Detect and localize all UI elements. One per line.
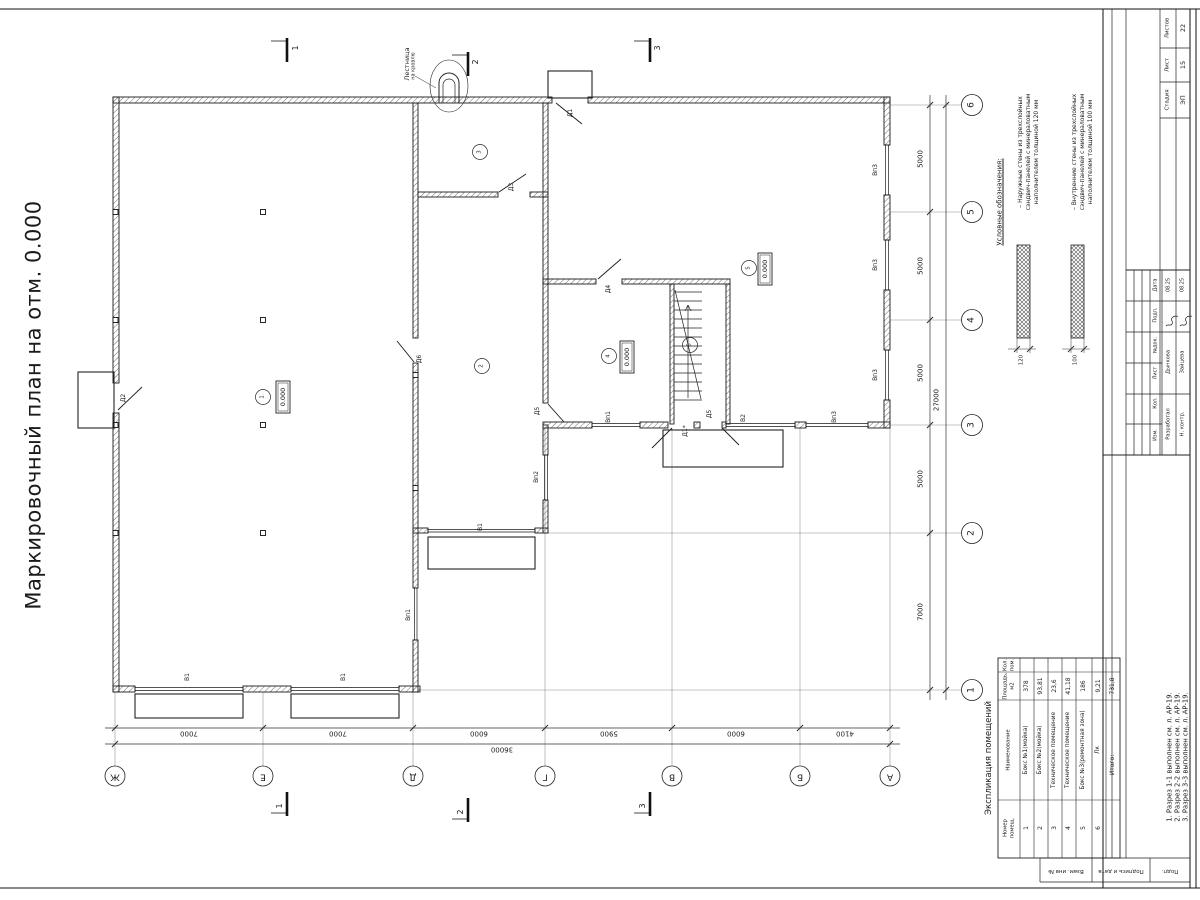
door-label: Д1*: [683, 425, 689, 437]
tb-side-cell: Взам. инв №: [1048, 867, 1084, 873]
door-label: Д2: [121, 394, 127, 403]
window-label: Вп1: [606, 411, 612, 423]
note-line: 1. Разрез 1-1 выполнен см. л. АР-19.: [1167, 692, 1174, 821]
room-number: 5: [746, 266, 752, 270]
dim-bottom: 6000: [470, 730, 488, 737]
dim-right: 7000: [918, 603, 925, 621]
door-label: Д5: [535, 407, 541, 416]
schedule-cell-number: 3: [1052, 826, 1058, 830]
legend-dim: 100: [1073, 355, 1079, 366]
axis-letter: А: [887, 772, 893, 781]
dim-bottom-total: 36000: [491, 746, 513, 753]
elevation-value: 0.000: [762, 260, 769, 279]
schedule-header: м2: [1010, 682, 1015, 689]
schedule-cell-area: 23,6: [1052, 679, 1058, 692]
section-number: 2: [457, 809, 465, 814]
tb-stage-header: Лист: [1165, 58, 1171, 72]
axis-number: 1: [968, 687, 977, 693]
axis-number: 6: [968, 102, 977, 108]
schedule-cell-name: Бокс №2(мойка): [1038, 725, 1044, 774]
window-label: В2: [741, 414, 747, 422]
dim-bottom: 4100: [836, 730, 854, 737]
plan-title: Маркировочный план на отм. 0.000: [24, 200, 45, 609]
tb-stage-header: Листов: [1165, 18, 1171, 39]
schedule-cell-number: 6: [1096, 826, 1102, 830]
tb-name: Дынкова: [1166, 350, 1171, 374]
schedule-cell-number: 1: [1024, 826, 1030, 830]
window-label: Вп3: [873, 369, 879, 381]
elevation-value: 0.000: [280, 388, 287, 407]
axis-number: 4: [968, 317, 977, 323]
schedule-cell-area: 41,18: [1066, 677, 1072, 694]
axis-number: 3: [968, 422, 977, 428]
schedule-header: Площадь,: [1003, 672, 1008, 699]
schedule-header: Номер: [1003, 819, 1008, 837]
schedule-cell-name: Лк: [1096, 746, 1102, 754]
tb-role: Разработал: [1166, 408, 1171, 439]
tb-date: 08.25: [1181, 278, 1186, 292]
dim-right: 5000: [918, 150, 925, 168]
tb-name: Зайцева: [1180, 351, 1185, 374]
dim-bottom: 6000: [727, 730, 745, 737]
tb-date: 08.25: [1167, 278, 1172, 292]
schedule-cell-area: 9,21: [1096, 679, 1102, 692]
legend-item-line: – Внутренние стены из трехслойных: [1072, 94, 1078, 210]
axis-letter: Ж: [110, 772, 120, 781]
legend-item-line: сэндвич-панелей с минераловатным: [1026, 94, 1032, 211]
dim-right: 5000: [918, 470, 925, 488]
tb-column-label: Кол.: [1154, 397, 1159, 408]
section-number: 3: [654, 45, 662, 50]
schedule-cell-name: Техническое помещение: [1052, 712, 1058, 788]
legend-item-line: – Наружные стены из трехслойных: [1018, 96, 1024, 208]
door-label: Д5: [707, 410, 713, 419]
room-number: 6: [687, 343, 693, 347]
drawing-sheet: Маркировочный план на отм. 0.000 Условны…: [0, 0, 1200, 900]
legend-dim: 120: [1019, 355, 1025, 366]
axis-letter: Е: [260, 772, 266, 781]
legend-item-line: сэндвич-панелей с минераловатным: [1080, 94, 1086, 211]
tb-stage-value: 15: [1180, 61, 1187, 69]
axis-number: 5: [968, 209, 977, 215]
door-label: Д1: [568, 109, 574, 118]
section-number: 1: [292, 45, 300, 50]
dim-right: 5000: [918, 364, 925, 382]
legend-title: Условные обозначения:: [997, 158, 1004, 245]
tb-column-label: Изм.: [1154, 429, 1159, 441]
axis-letter: Д: [409, 772, 416, 781]
schedule-cell-name: Бокс №1(мойка): [1024, 725, 1030, 774]
schedule-header: пом.: [1010, 659, 1015, 671]
tb-stage-value: ЭП: [1180, 95, 1187, 104]
room-number: 2: [479, 364, 485, 368]
window-label: Вп3: [873, 259, 879, 271]
section-number: 2: [472, 59, 480, 64]
schedule-cell-area: 186: [1081, 680, 1087, 691]
legend-item-line: наполнителем толщиной 120 мм: [1034, 100, 1040, 204]
door-label: Д6: [417, 355, 423, 364]
schedule-header: Кол.: [1003, 659, 1008, 671]
window-label: Вп3: [873, 164, 879, 176]
window-label: Вп1: [406, 609, 412, 621]
note-line: 2. Разрез 2-2 выполнен см. л. АР-19.: [1175, 692, 1182, 821]
axis-letter: Б: [797, 772, 803, 781]
door-label: Д3: [509, 183, 515, 192]
roof-ladder-label: Лестница: [404, 47, 411, 80]
tb-column-label: Подп.: [1154, 307, 1159, 322]
tb-stage-header: Стадия: [1165, 89, 1171, 110]
tb-side-cell: Подпись и дата: [1098, 867, 1144, 873]
tb-role: Н. контр.: [1180, 412, 1185, 437]
legend-item-line: наполнителем толщиной 100 мм: [1088, 100, 1094, 204]
elevation-value: 0.000: [624, 348, 631, 367]
room-number: 3: [477, 150, 483, 154]
window-label: Вп3: [832, 411, 838, 423]
tb-stage-value: 22: [1180, 24, 1187, 32]
dim-bottom: 7000: [329, 730, 347, 737]
schedule-cell-area: 93,81: [1038, 677, 1044, 694]
window-label: В1: [478, 523, 484, 531]
schedule-total-value: 731,8: [1110, 677, 1116, 694]
window-label: Вп2: [534, 471, 540, 483]
schedule-cell-name: Бокс №3(ремонтная зона): [1081, 710, 1087, 789]
axis-number: 2: [968, 530, 977, 536]
axis-letter: В: [669, 772, 675, 781]
window-label: В1: [185, 673, 191, 681]
schedule-cell-name: Техническое помещение: [1066, 712, 1072, 788]
schedule-cell-area: 378: [1024, 680, 1030, 691]
section-number: 1: [276, 803, 284, 808]
section-number: 3: [639, 803, 647, 808]
schedule-header: Наименование: [1006, 729, 1011, 770]
window-label: В1: [341, 673, 347, 681]
tb-column-label: №док.: [1154, 337, 1159, 353]
door-label: Д4: [606, 285, 612, 294]
labels-layer: Маркировочный план на отм. 0.000 Условны…: [0, 0, 1200, 900]
schedule-total-label: Итого:: [1110, 755, 1116, 776]
schedule-cell-number: 4: [1066, 826, 1072, 830]
schedule-cell-number: 2: [1038, 826, 1044, 830]
schedule-header: помещ.: [1010, 818, 1015, 839]
dim-bottom: 7000: [180, 730, 198, 737]
tb-column-label: Лист: [1154, 367, 1159, 380]
dim-right-total: 27000: [934, 389, 941, 411]
tb-column-label: Дата: [1154, 279, 1159, 292]
axis-letter: Г: [542, 772, 548, 781]
dim-right: 5000: [918, 257, 925, 275]
dim-bottom: 5900: [600, 730, 618, 737]
tb-side-cell: Подп.: [1162, 867, 1179, 873]
schedule-cell-number: 5: [1081, 826, 1087, 830]
schedule-title: Экспликация помещений: [985, 701, 994, 815]
note-line: 3. Разрез 3-3 выполнен см. л. АР-19.: [1183, 692, 1190, 821]
roof-ladder-label: на кровлю: [412, 52, 417, 80]
room-number: 4: [606, 354, 612, 358]
room-number: 1: [260, 395, 266, 399]
